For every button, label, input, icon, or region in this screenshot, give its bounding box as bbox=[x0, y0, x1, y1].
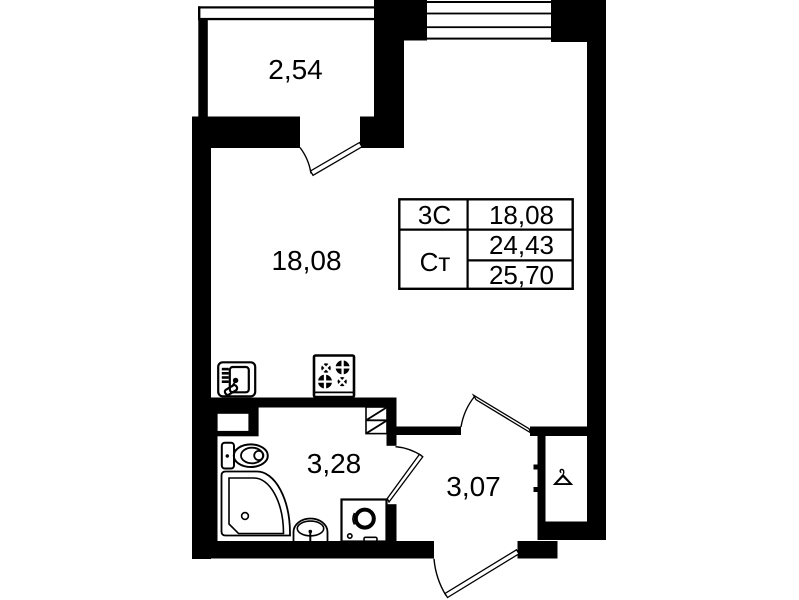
svg-text:18,08: 18,08 bbox=[271, 245, 341, 276]
svg-text:25,70: 25,70 bbox=[489, 260, 554, 290]
svg-text:3С: 3С bbox=[418, 200, 451, 230]
svg-text:2,54: 2,54 bbox=[268, 54, 323, 85]
svg-text:24,43: 24,43 bbox=[489, 230, 554, 260]
svg-text:3,28: 3,28 bbox=[307, 448, 362, 479]
svg-text:18,08: 18,08 bbox=[489, 200, 554, 230]
svg-text:3,07: 3,07 bbox=[446, 471, 501, 502]
svg-text:Ст: Ст bbox=[420, 247, 451, 277]
